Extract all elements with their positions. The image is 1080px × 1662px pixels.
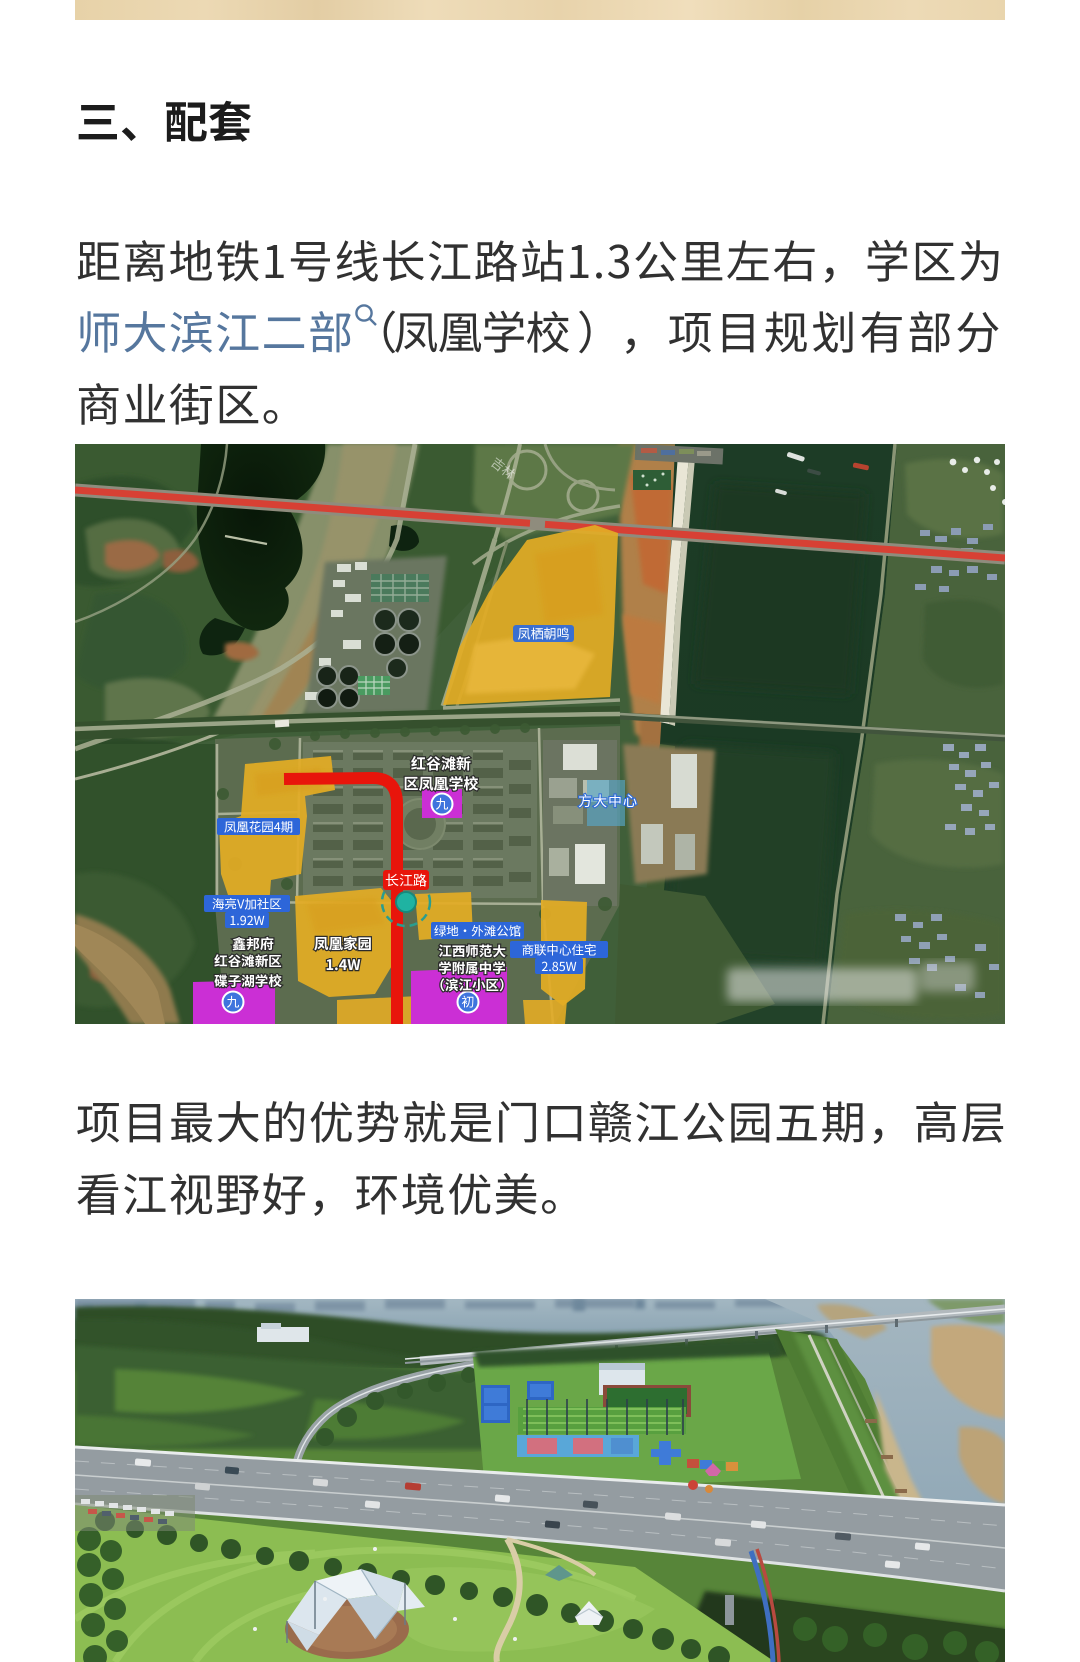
svg-text:凤凰家园: 凤凰家园	[314, 933, 372, 954]
svg-text:区凤凰学校: 区凤凰学校	[403, 773, 478, 794]
svg-text:1.92W: 1.92W	[229, 910, 264, 929]
svg-text:红谷滩新: 红谷滩新	[411, 753, 471, 774]
svg-text:碟子湖学校: 碟子湖学校	[214, 970, 282, 990]
svg-text:九: 九	[435, 794, 449, 813]
svg-text:凤凰花园4期: 凤凰花园4期	[224, 817, 293, 836]
svg-text:2.85W: 2.85W	[541, 956, 576, 975]
svg-text:九: 九	[226, 992, 240, 1011]
svg-text:绿地·外滩公馆: 绿地·外滩公馆	[434, 921, 522, 940]
svg-text:方大中心: 方大中心	[578, 791, 638, 811]
svg-text:凤栖朝鸣: 凤栖朝鸣	[517, 624, 569, 643]
svg-text:1.4W: 1.4W	[325, 954, 360, 975]
svg-text:长江路: 长江路	[385, 871, 427, 891]
svg-text:初: 初	[461, 992, 474, 1011]
svg-text:（滨江小区）: （滨江小区）	[432, 974, 513, 994]
svg-text:红谷滩新区: 红谷滩新区	[214, 950, 282, 970]
